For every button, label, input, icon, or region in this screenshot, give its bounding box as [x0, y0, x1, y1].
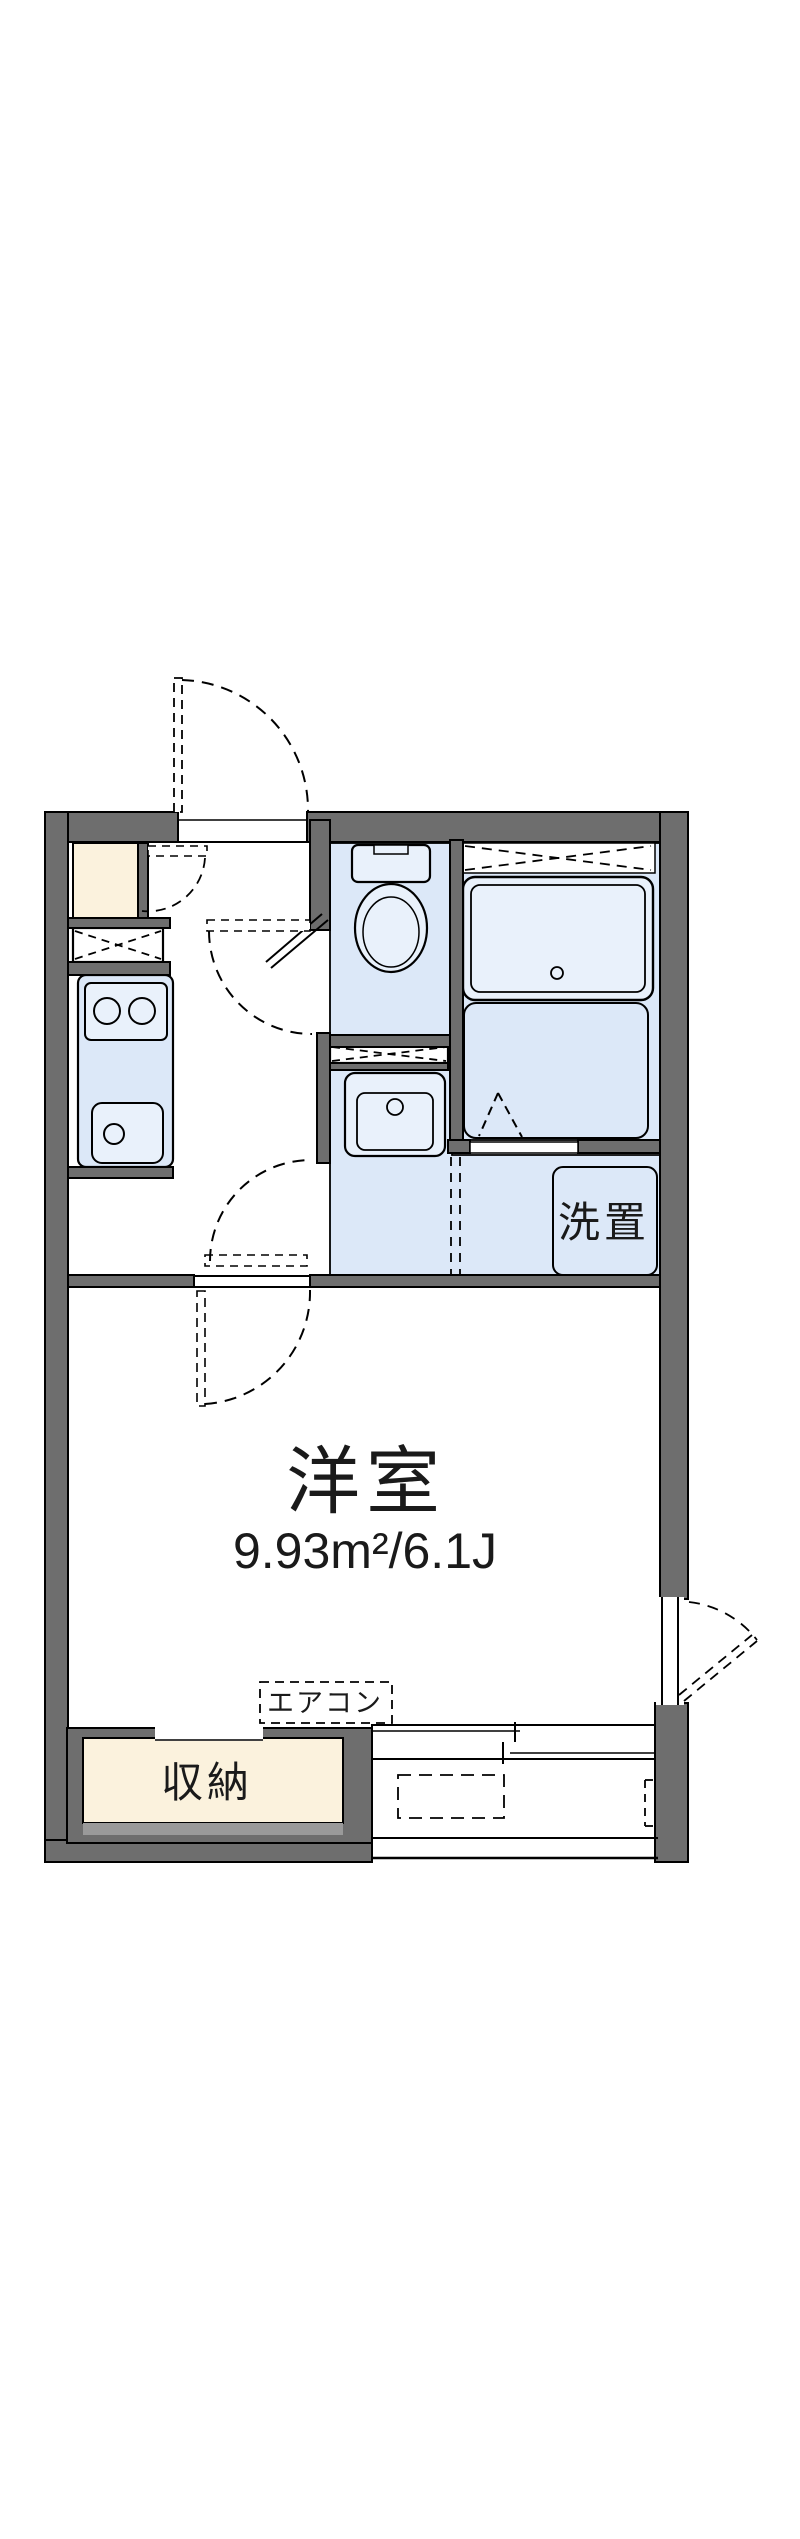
floorplan-page: 洗置: [0, 0, 800, 2539]
main-room-door-arc: [205, 1290, 310, 1404]
wall-entry-toilet: [310, 820, 330, 930]
main-room-name-label: 洋室: [286, 1440, 446, 1523]
wall-hall-washroom: [317, 1033, 330, 1163]
main-room-labels: 洋室 9.93m²/6.1J: [233, 1440, 497, 1579]
storage-label: 収納: [161, 1759, 253, 1806]
sliding-window-frame: [372, 1725, 655, 1759]
bathtub-outer: [463, 877, 653, 1000]
washroom-upper-door-leaf: [207, 920, 310, 931]
kitchen-sink: [92, 1103, 163, 1163]
entrance-door-leaf: [174, 678, 182, 812]
stove-burner-left: [94, 998, 120, 1024]
outer-wall-right-lower: [655, 1703, 688, 1862]
washroom-lower-door-arc: [210, 1160, 311, 1261]
wall-kitchen-band1: [68, 918, 170, 928]
wall-room-top-left: [68, 1275, 194, 1287]
shoe-cabinet-swing-arc: [142, 858, 205, 911]
outer-wall-right-upper: [660, 812, 688, 1599]
main-room-door-leaf: [197, 1291, 205, 1406]
side-exit-door: [656, 1597, 757, 1705]
fridge-space: [73, 843, 138, 918]
wall-kitchen-band2: [68, 962, 170, 975]
entrance-door: [174, 678, 308, 842]
side-door-gap: [656, 1597, 684, 1705]
stove-burner-right: [129, 998, 155, 1024]
wall-fridge-side: [138, 843, 148, 920]
shoe-cabinet-leaf: [148, 846, 207, 856]
bath-door-panel: [470, 1142, 578, 1153]
main-room-area-label: 9.93m²/6.1J: [233, 1523, 497, 1579]
main-room-door: [194, 1276, 310, 1406]
sink-drain: [104, 1124, 124, 1144]
wall-bath-bottom-right: [578, 1140, 660, 1153]
toilet-fixture: [352, 845, 430, 972]
balcony-window: [372, 1722, 655, 1764]
wall-toilet-bottom: [330, 1035, 450, 1047]
storage-closet: 収納: [67, 1727, 372, 1843]
aircon: エアコン: [260, 1682, 392, 1723]
side-door-swing-arc: [689, 1602, 757, 1640]
side-door-leaf-1: [684, 1641, 757, 1701]
storage-door-gap: [155, 1727, 263, 1741]
wall-toilet-bath: [450, 840, 463, 1143]
shoe-cabinet-door: [142, 846, 207, 911]
washroom-lower-door-leaf: [205, 1255, 307, 1266]
side-door-leaf-2: [679, 1635, 752, 1695]
kitchen-area: [73, 843, 173, 1167]
entrance-door-swing-arc: [182, 680, 308, 812]
aircon-label: エアコン: [267, 1688, 383, 1718]
floorplan-drawing: 洗置: [0, 0, 800, 2539]
wall-below-shelf: [330, 1063, 448, 1070]
toilet-flush-button: [374, 845, 408, 854]
balcony: [372, 1775, 658, 1858]
washroom-doors: [205, 920, 312, 1266]
outer-wall-top-right: [307, 812, 688, 842]
laundry-label: 洗置: [558, 1199, 650, 1246]
wall-room-top-right: [310, 1275, 660, 1287]
washbasin-fixture: [345, 1073, 445, 1156]
wall-kitchen-band3: [68, 1167, 173, 1178]
main-room-door-panel: [194, 1276, 310, 1287]
storage-shelf-strip: [83, 1823, 343, 1835]
wall-bath-bottom-left: [448, 1140, 470, 1153]
balcony-dashed-equipment: [398, 1775, 504, 1818]
outer-wall-left: [45, 812, 68, 1862]
